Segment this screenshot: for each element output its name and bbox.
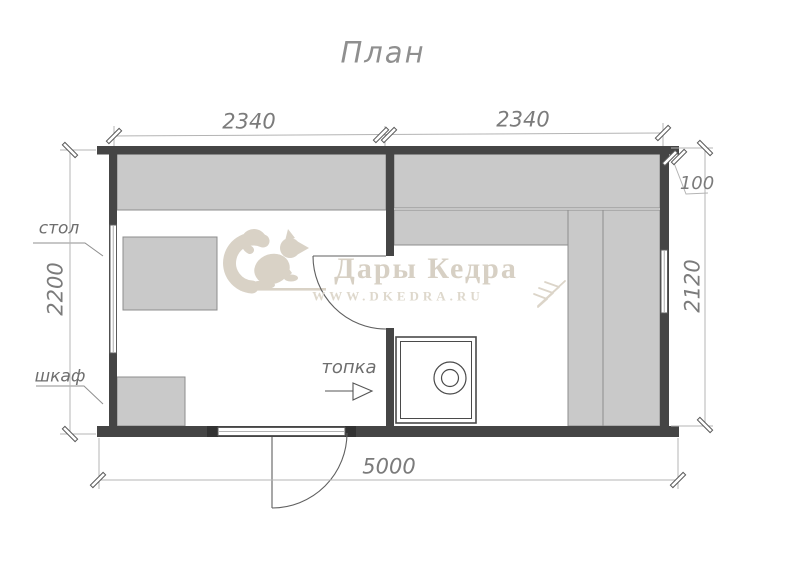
dim-room1-width: 2340	[222, 112, 275, 133]
dim-room2-width: 2340	[496, 110, 549, 131]
window-right	[661, 250, 668, 313]
label-cabinet: шкаф	[35, 369, 86, 386]
dim-corner-overhang: 100	[680, 175, 714, 193]
table	[123, 237, 217, 310]
stove-chimney-inner	[442, 370, 459, 387]
room2-top-bench	[394, 154, 660, 208]
label-table: стол	[39, 221, 80, 238]
dim-room1-depth: 2200	[46, 262, 67, 315]
wheat-branch	[534, 294, 547, 307]
floor-plan-page: План 2340 2340 100 2200 2120 5000 стол ш…	[0, 0, 800, 565]
entrance-door-swing-arc	[272, 433, 347, 508]
dim-total-length: 5000	[362, 457, 415, 478]
room1-top-bench	[117, 154, 386, 210]
wall-bottom	[97, 426, 679, 437]
wheat-sprig-icon	[534, 281, 565, 307]
entrance-glazing	[207, 426, 356, 437]
cabinet	[117, 377, 185, 426]
stove	[396, 337, 476, 423]
wall-partition-upper	[386, 154, 394, 256]
wall-partition-lower	[386, 328, 394, 426]
room2-side-bench-upper-tier	[568, 210, 603, 426]
room2-middle-bench	[394, 210, 568, 245]
room2-side-bench-lower-tier	[603, 210, 660, 426]
page-title: План	[340, 39, 425, 68]
watermark-brand: Дары Кедра	[334, 254, 518, 284]
window-left	[110, 225, 117, 353]
squirrel-logo-icon	[230, 229, 326, 291]
watermark-website: WWW.DKEDRA.RU	[312, 290, 483, 303]
firebox-arrow-icon	[325, 383, 372, 400]
label-firebox: топка	[321, 359, 376, 377]
wall-top	[97, 146, 679, 155]
dim-room2-depth: 2120	[683, 259, 704, 312]
table-leader-line	[33, 243, 103, 256]
squirrel-front-paw	[284, 275, 298, 282]
squirrel-snout	[295, 240, 309, 256]
